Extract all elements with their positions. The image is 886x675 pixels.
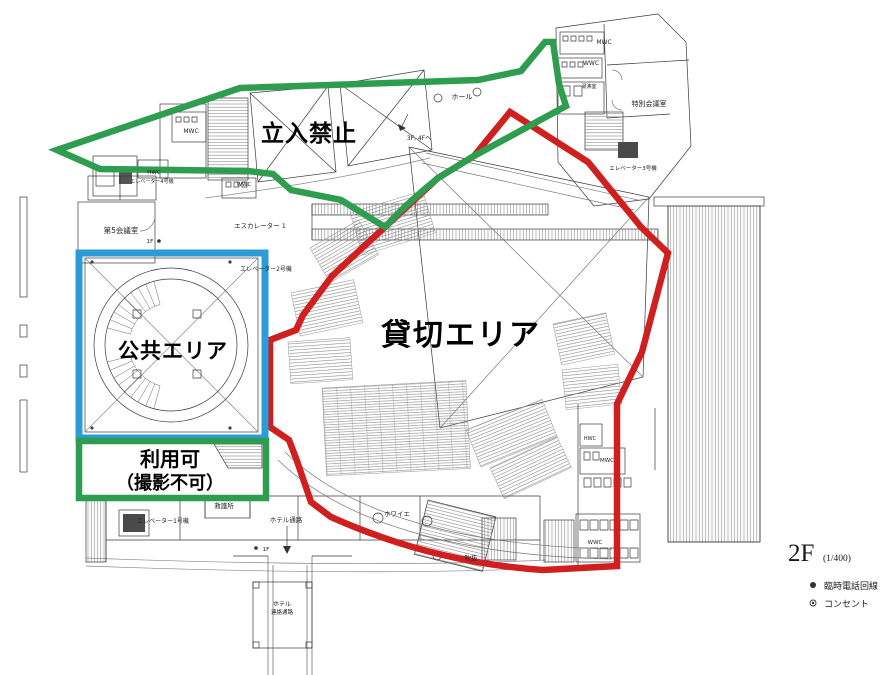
foyer-label: ホワイエ bbox=[384, 510, 410, 518]
usable-label-line2: （撮影不可） bbox=[116, 472, 224, 494]
reserved-label: 貸切エリア bbox=[381, 318, 541, 353]
elevator1-label: エレベーター1号機 bbox=[137, 517, 189, 525]
wwc-n-label: WWC bbox=[237, 182, 252, 188]
floor1-lower-label: 1F bbox=[263, 547, 270, 553]
outlet-symbol bbox=[810, 600, 816, 606]
kettle-room-label: 湯沸室 bbox=[581, 83, 596, 90]
escalator1-label: エスカレーター 1 bbox=[234, 221, 286, 230]
legend: 2F (1/400) 臨時電話回線 コンセント bbox=[788, 540, 878, 610]
east-louver-band bbox=[654, 197, 764, 542]
mwc-ne-label: MWC bbox=[596, 39, 611, 46]
usable-label-line1: 利用可 bbox=[140, 447, 200, 471]
floorplan-page: 立入禁止 貸切エリア 公共エリア 利用可 （撮影不可） ホール 3F, 4Fへ … bbox=[0, 0, 886, 675]
meeting-room5-label: 第5会議室 bbox=[104, 225, 139, 235]
hotel-link-label-line1: ホテル bbox=[273, 601, 291, 608]
void-label: 吹抜 bbox=[465, 553, 479, 562]
usable-area-stair bbox=[214, 444, 262, 468]
special-meeting-room-label: 特別会議室 bbox=[632, 99, 667, 108]
hotel-corridor-structure bbox=[233, 526, 352, 675]
outlet-label: コンセント bbox=[824, 599, 869, 610]
mwc-e-label: MWC bbox=[600, 458, 614, 464]
floor-scale: (1/400) bbox=[823, 553, 851, 564]
northeast-block bbox=[556, 14, 691, 206]
left-wall-segments bbox=[20, 197, 27, 472]
stair-hatch-ne bbox=[585, 112, 623, 150]
phone-line-symbol bbox=[810, 582, 816, 588]
hall-label: ホール bbox=[452, 93, 473, 101]
phone-line-label: 臨時電話回線 bbox=[824, 580, 878, 592]
elevator2-label: エレベーター2号機 bbox=[240, 265, 292, 273]
upper-floor-arrow bbox=[398, 114, 408, 131]
floor-title: 2F bbox=[788, 540, 814, 567]
atrium-stair-fan-lower bbox=[107, 356, 160, 409]
elevator3-label: エレベーター3号機 bbox=[609, 164, 657, 172]
down-arrow-icon bbox=[283, 546, 291, 554]
elevator3-shaft bbox=[618, 142, 638, 158]
upper-floors-label: 3F, 4Fへ bbox=[407, 135, 431, 142]
atrium-stair-fan-upper bbox=[107, 281, 160, 334]
hwc-nw-label: HWC bbox=[147, 170, 161, 176]
wwc-se-label: WWC bbox=[588, 540, 603, 546]
no-entry-label: 立入禁止 bbox=[261, 120, 357, 147]
mwc-nw-label: MWC bbox=[183, 128, 198, 135]
elevator4-label: エレベーター4号機 bbox=[130, 178, 173, 185]
wwc-ne-label: WWC bbox=[583, 60, 599, 67]
first-aid-label: 救護所 bbox=[214, 501, 234, 510]
floorplan-svg: 立入禁止 貸切エリア 公共エリア 利用可 （撮影不可） ホール 3F, 4Fへ … bbox=[0, 0, 886, 675]
hotel-corridor-label: ホテル通路 bbox=[270, 515, 303, 524]
floor1-upper-label: 1F bbox=[147, 239, 154, 245]
public-label: 公共エリア bbox=[118, 339, 228, 363]
hotel-link-label-line2: 連絡通路 bbox=[271, 608, 294, 616]
hwc-e-label: HWC bbox=[584, 436, 597, 442]
